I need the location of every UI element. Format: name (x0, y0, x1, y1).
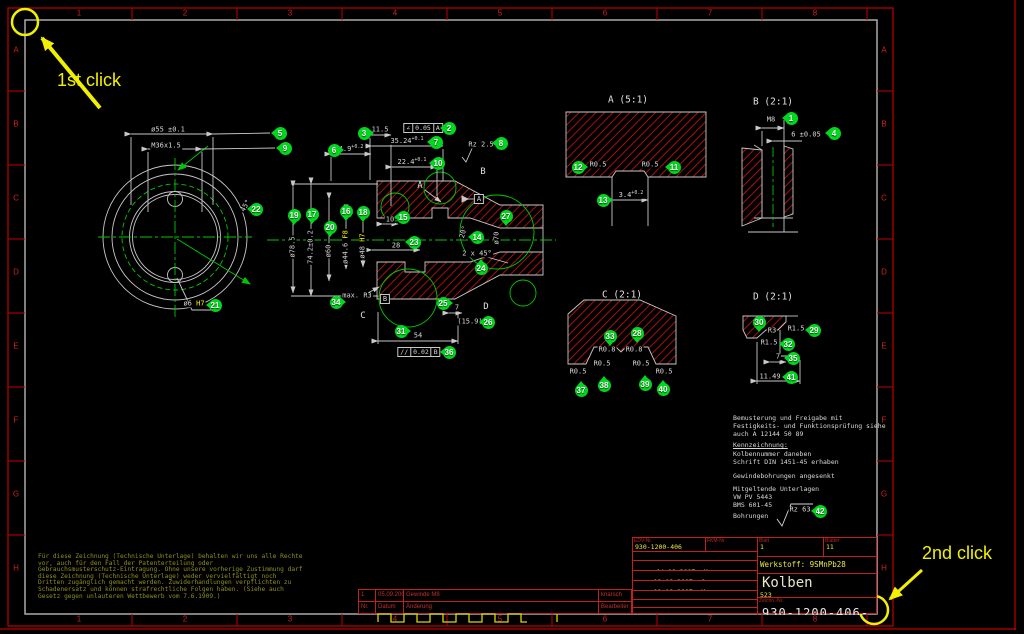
note-line: BMS 601-45 (733, 501, 772, 509)
balloon-42: 42 (814, 505, 827, 518)
balloon-28: 28 (631, 327, 644, 340)
legal-text-line: Gesetz gegen unlauteren Wettbewerb vom 7… (38, 593, 221, 600)
dimension-label: ø48 H7 (360, 232, 367, 259)
dimension-label: M36x1.5 (150, 143, 182, 150)
balloon-25: 25 (437, 297, 450, 310)
second-click-label: 2nd click (922, 543, 992, 564)
dimension-label: R0.8 (625, 347, 644, 354)
note-line: Gewindebohrungen angesenkt (733, 472, 835, 480)
datum-box: B (380, 294, 390, 304)
ruler-row-letter: H (881, 564, 887, 573)
balloon-22: 22 (250, 203, 263, 216)
detail-view-title: A (5:1) (608, 95, 648, 106)
balloon-4: 4 (828, 127, 841, 140)
datum-box: A (474, 194, 484, 204)
ruler-col-number: 6 (603, 9, 607, 18)
balloon-38: 38 (598, 379, 611, 392)
zeichn-label: Zeichn.-Nr. (758, 598, 876, 604)
view-letter: C (360, 311, 365, 321)
balloon-12: 12 (572, 161, 585, 174)
revision-row-change: Gewinde M8 (404, 590, 599, 602)
balloon-16: 16 (340, 205, 353, 218)
detail-view-title: C (2:1) (602, 290, 642, 301)
dimension-label: ø78.5 (290, 235, 297, 258)
ruler-row-letter: A (13, 46, 18, 55)
balloon-7: 7 (430, 136, 443, 149)
balloon-8: 8 (495, 137, 508, 150)
ruler-col-number: 1 (77, 615, 81, 624)
ruler-col-number: 4 (393, 9, 397, 18)
ruler-col-number: 7 (708, 9, 712, 18)
first-click-label: 1st click (57, 70, 121, 91)
balloon-36: 36 (443, 346, 456, 359)
blaetter-value: 11 (824, 544, 876, 551)
balloon-1: 1 (785, 112, 798, 125)
balloon-32: 32 (782, 338, 795, 351)
detail-view-title: D (2:1) (753, 292, 793, 303)
balloon-27: 27 (500, 210, 513, 223)
balloon-33: 33 (604, 330, 617, 343)
balloon-13: 13 (597, 194, 610, 207)
view-letter: B (480, 167, 485, 177)
revision-row-date: 05.09.2007 (376, 590, 404, 602)
revision-col-by: Bearbeiter (599, 602, 631, 614)
ruler-col-number: 5 (498, 615, 502, 624)
dimension-label: R0.5 (593, 361, 612, 368)
drawing-number: 930-1200-406-1 (758, 606, 869, 615)
note-line: Kolbennummer daneben (733, 450, 811, 458)
view-letter: D (483, 302, 488, 312)
balloon-34: 34 (330, 296, 343, 309)
balloon-41: 41 (785, 371, 798, 384)
ruler-row-letter: E (13, 342, 18, 351)
ruler-col-number: 1 (77, 9, 81, 18)
note-line: Kennzeichnung: (733, 441, 788, 449)
balloon-23: 23 (408, 236, 421, 249)
balloon-30: 30 (753, 316, 766, 329)
dimension-label: R0.5 (655, 369, 674, 376)
balloon-21: 21 (209, 299, 222, 312)
balloon-26: 26 (482, 316, 495, 329)
balloon-15: 15 (397, 211, 410, 224)
dimension-label: ø60 (326, 244, 333, 259)
dimension-label: 35.24+0.1 (389, 137, 424, 145)
edv-value: 930-1200-406 (633, 544, 705, 551)
balloon-24: 24 (475, 262, 488, 275)
balloon-29: 29 (808, 324, 821, 337)
ruler-row-letter: E (881, 342, 886, 351)
balloon-2: 2 (443, 122, 456, 135)
balloon-18: 18 (357, 206, 370, 219)
ruler-row-letter: D (881, 268, 887, 277)
revision-col-change: Änderung (404, 602, 599, 614)
revision-table: 1 05.09.2007 Gewinde M8 knarsch Nr. Datu… (358, 589, 632, 614)
ruler-col-number: 8 (813, 9, 817, 18)
ruler-row-letter: G (13, 490, 19, 499)
view-letter: A (417, 181, 422, 191)
balloon-14: 14 (471, 231, 484, 244)
ruler-col-number: 5 (498, 9, 502, 18)
ruler-col-number: 6 (603, 615, 607, 624)
ruler-row-letter: H (13, 564, 19, 573)
part-name: Kolben (758, 574, 817, 591)
title-block: EDV-Nr. 930-1200-406 FKM-Nr. Format A2 B… (632, 537, 877, 614)
balloon-35: 35 (787, 352, 800, 365)
werkstoff-value: Werkstoff: 9SMnPb28 (758, 557, 876, 572)
detail-view-title: B (2:1) (753, 97, 793, 108)
ruler-col-number: 3 (288, 615, 292, 624)
revision-row-by: knarsch (599, 590, 631, 602)
ruler-row-letter: D (13, 268, 19, 277)
balloon-11: 11 (668, 161, 681, 174)
dimension-label: ø55 ±0.1 (150, 127, 186, 134)
balloon-40: 40 (657, 383, 670, 396)
balloon-6: 6 (328, 144, 341, 157)
note-line: Bohrungen (733, 512, 768, 520)
note-line: Bemusterung und Freigabe mit (733, 414, 843, 422)
ruler-row-letter: B (13, 120, 18, 129)
ruler-row-letter: A (881, 46, 886, 55)
ruler-row-letter: C (13, 194, 19, 203)
ruler-row-letter: G (881, 490, 887, 499)
ruler-row-letter: B (881, 120, 886, 129)
dimension-label: R0.5 (641, 162, 660, 169)
ruler-col-number: 4 (393, 615, 397, 624)
balloon-9: 9 (279, 142, 292, 155)
cad-drawing-sheet: 1122334455667788AABBCCDDEEFFGGHHø55 ±0.1… (0, 0, 1024, 634)
balloon-37: 37 (575, 384, 588, 397)
note-line: Mitgeltende Unterlagen (733, 485, 819, 493)
dimension-label: R0.5 (569, 369, 588, 376)
ruler-col-number: 8 (813, 615, 817, 624)
balloon-10: 10 (432, 157, 445, 170)
revision-col-date: Datum (376, 602, 404, 614)
dimension-label: 6 ±0.05 (790, 132, 822, 139)
revision-col-nr: Nr. (359, 602, 376, 614)
balloon-19: 19 (288, 209, 301, 222)
balloon-17: 17 (306, 208, 319, 221)
ruler-col-number: 3 (288, 9, 292, 18)
dimension-label: 22.4+0.1 (397, 158, 428, 166)
note-line: Festigkeits- und Funktionsprüfung siehe (733, 422, 886, 430)
gdt-frame: //0.02B (397, 347, 440, 357)
ruler-col-number: 2 (183, 9, 187, 18)
dimension-label: 74.2±0.2 (308, 229, 315, 265)
dimension-label: R3 (767, 328, 777, 335)
balloon-3: 3 (358, 127, 371, 140)
ruler-col-number: 2 (183, 615, 187, 624)
note-line: Schrift DIN 1451-45 erhaben (733, 458, 839, 466)
dimension-label: ø44.6 F8 (343, 229, 350, 265)
ruler-row-letter: F (14, 416, 19, 425)
note-line: auch A 12144 50 89 (733, 430, 803, 438)
note-line: VW PV 5443 (733, 493, 772, 501)
dimension-label: ø70 (494, 231, 501, 246)
balloon-39: 39 (639, 378, 652, 391)
balloon-5: 5 (274, 127, 287, 140)
balloon-31: 31 (395, 325, 408, 338)
balloon-20: 20 (324, 221, 337, 234)
blatt-value: 1 (758, 544, 823, 551)
revision-row-nr: 1 (359, 590, 376, 602)
ruler-col-number: 7 (708, 615, 712, 624)
dimension-label: M8 (766, 117, 776, 124)
ruler-row-letter: C (881, 194, 887, 203)
dimension-label: 3.4+0.2 (618, 191, 645, 199)
fkm-label: FKM-Nr. (706, 538, 757, 544)
dimension-label: R0.5 (632, 361, 651, 368)
